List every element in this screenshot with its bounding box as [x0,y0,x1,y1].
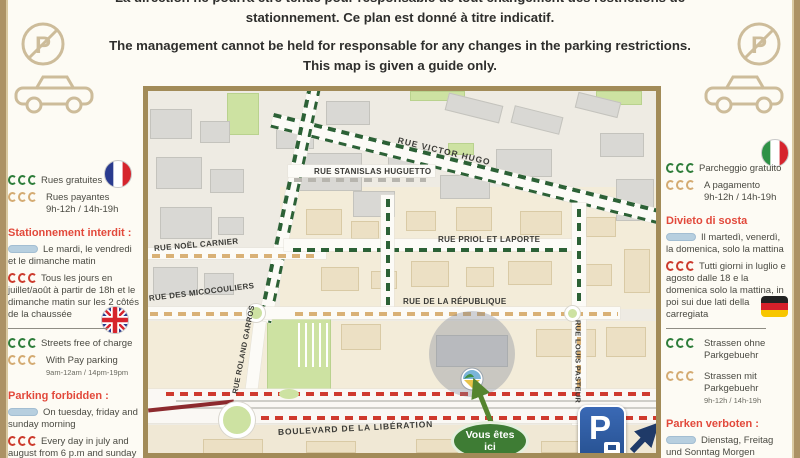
forbidden-route-key-icon [666,261,695,271]
legend-row-en-paid: With Pay parking9am-12am / 14pm-19pm [8,355,142,379]
de-paid-hours: 9h-12h / 14h-19h [704,395,790,407]
de-forbidden-title: Parken verboten : [666,418,790,430]
fr-paid-hours: 9h-12h / 14h-19h [46,204,118,216]
legend-divider [666,328,766,329]
legend-row-de-free: Strassen ohne Parkgebuehr [666,338,790,362]
en-paid-hours: 9am-12am / 14pm-19pm [46,367,128,379]
de-free-label: Strassen ohne Parkgebuehr [704,338,790,362]
paid-route-key-icon [666,180,695,204]
forbidden-route-key-icon [8,273,37,283]
legend-row-fr-free: Rues gratuites [8,175,142,187]
en-free-label: Streets free of charge [41,338,132,349]
free-route-key-icon [666,338,695,362]
forbidden-route-key-icon [8,436,37,446]
legend-right: Parcheggio gratuito A pagamento9h-12h / … [666,158,790,458]
parking-sign: P [578,405,626,458]
paid-route-key-icon [666,371,695,407]
you-are-here-badge: Vous êtes ici [451,421,529,458]
parking-direction-arrow [632,431,651,451]
map-arrows [148,91,656,458]
legend-row-it-paid: A pagamento9h-12h / 14h-19h [666,180,790,204]
car-icon-left [12,70,96,118]
legend-row-en-blue: On tuesday, friday and sunday morning [8,407,142,431]
paid-route-key-icon [8,355,37,379]
de-paid-label: Strassen mit Parkgebuehr9h-12h / 14h-19h [704,371,790,407]
legend-row-de-blue: Dienstag, Freitag und Sonntag Morgen [666,435,790,458]
legend-row-fr-red: Tous les jours en juillet/août à partir … [8,273,142,321]
parking-barrier-icon [604,442,620,455]
legend-row-en-red: Every day in july and august from 6 p.m … [8,436,142,458]
disclaimer-english: The management cannot be held for respon… [95,36,705,76]
it-paid-hours: 9h-12h / 14h-19h [704,192,776,204]
no-parking-icon-right: P [736,21,782,67]
free-route-key-icon [8,175,37,185]
en-forbidden-title: Parking forbidden : [8,390,142,402]
left-border-strip [0,0,8,458]
parking-map-poster: La direction ne pourra être tenue pour r… [0,0,800,458]
blue-route-key-icon [666,436,696,444]
disclaimer-fr-line1: La direction ne pourra être tenue pour r… [95,0,705,8]
paid-route-key-icon [8,192,37,216]
car-icon-right [702,70,786,118]
legend-row-it-red: Tutti giorni in luglio e agosto dalle 18… [666,261,790,321]
en-paid-label: With Pay parking9am-12am / 14pm-19pm [46,355,128,379]
blue-route-key-icon [666,233,696,241]
fr-paid-label: Rues payantes9h-12h / 14h-19h [46,192,118,216]
free-route-key-icon [8,338,37,348]
legend-left: Rues gratuites Rues payantes9h-12h / 14h… [8,170,142,458]
legend-divider [8,328,108,329]
legend-row-it-blue: Il martedì, venerdì, la domenica, solo l… [666,232,790,256]
legend-row-de-paid: Strassen mit Parkgebuehr9h-12h / 14h-19h [666,371,790,407]
disclaimer-en-line1: The management cannot be held for respon… [95,36,705,56]
free-route-key-icon [666,163,695,173]
legend-row-fr-paid: Rues payantes9h-12h / 14h-19h [8,192,142,216]
disclaimer-french: La direction ne pourra être tenue pour r… [95,0,705,28]
blue-route-key-icon [8,408,38,416]
fr-forbidden-title: Stationnement interdit : [8,227,142,239]
right-border-strip [792,0,800,458]
blue-route-key-icon [8,245,38,253]
parking-map: RUE VICTOR HUGO RUE STANISLAS HUGUETTO R… [143,86,661,458]
it-free-label: Parcheggio gratuito [699,163,781,174]
it-forbidden-title: Divieto di sosta [666,215,790,227]
legend-row-en-free: Streets free of charge [8,338,142,350]
legend-row-it-free: Parcheggio gratuito [666,163,790,175]
legend-row-fr-blue: Le mardi, le vendredi et le dimanche mat… [8,244,142,268]
no-parking-icon-left: P [20,21,66,67]
fr-free-label: Rues gratuites [41,175,102,186]
disclaimer-fr-line2: stationnement. Ce plan est donné à titre… [95,8,705,28]
disclaimer-en-line2: This map is given a guide only. [95,56,705,76]
it-paid-label: A pagamento9h-12h / 14h-19h [704,180,776,204]
